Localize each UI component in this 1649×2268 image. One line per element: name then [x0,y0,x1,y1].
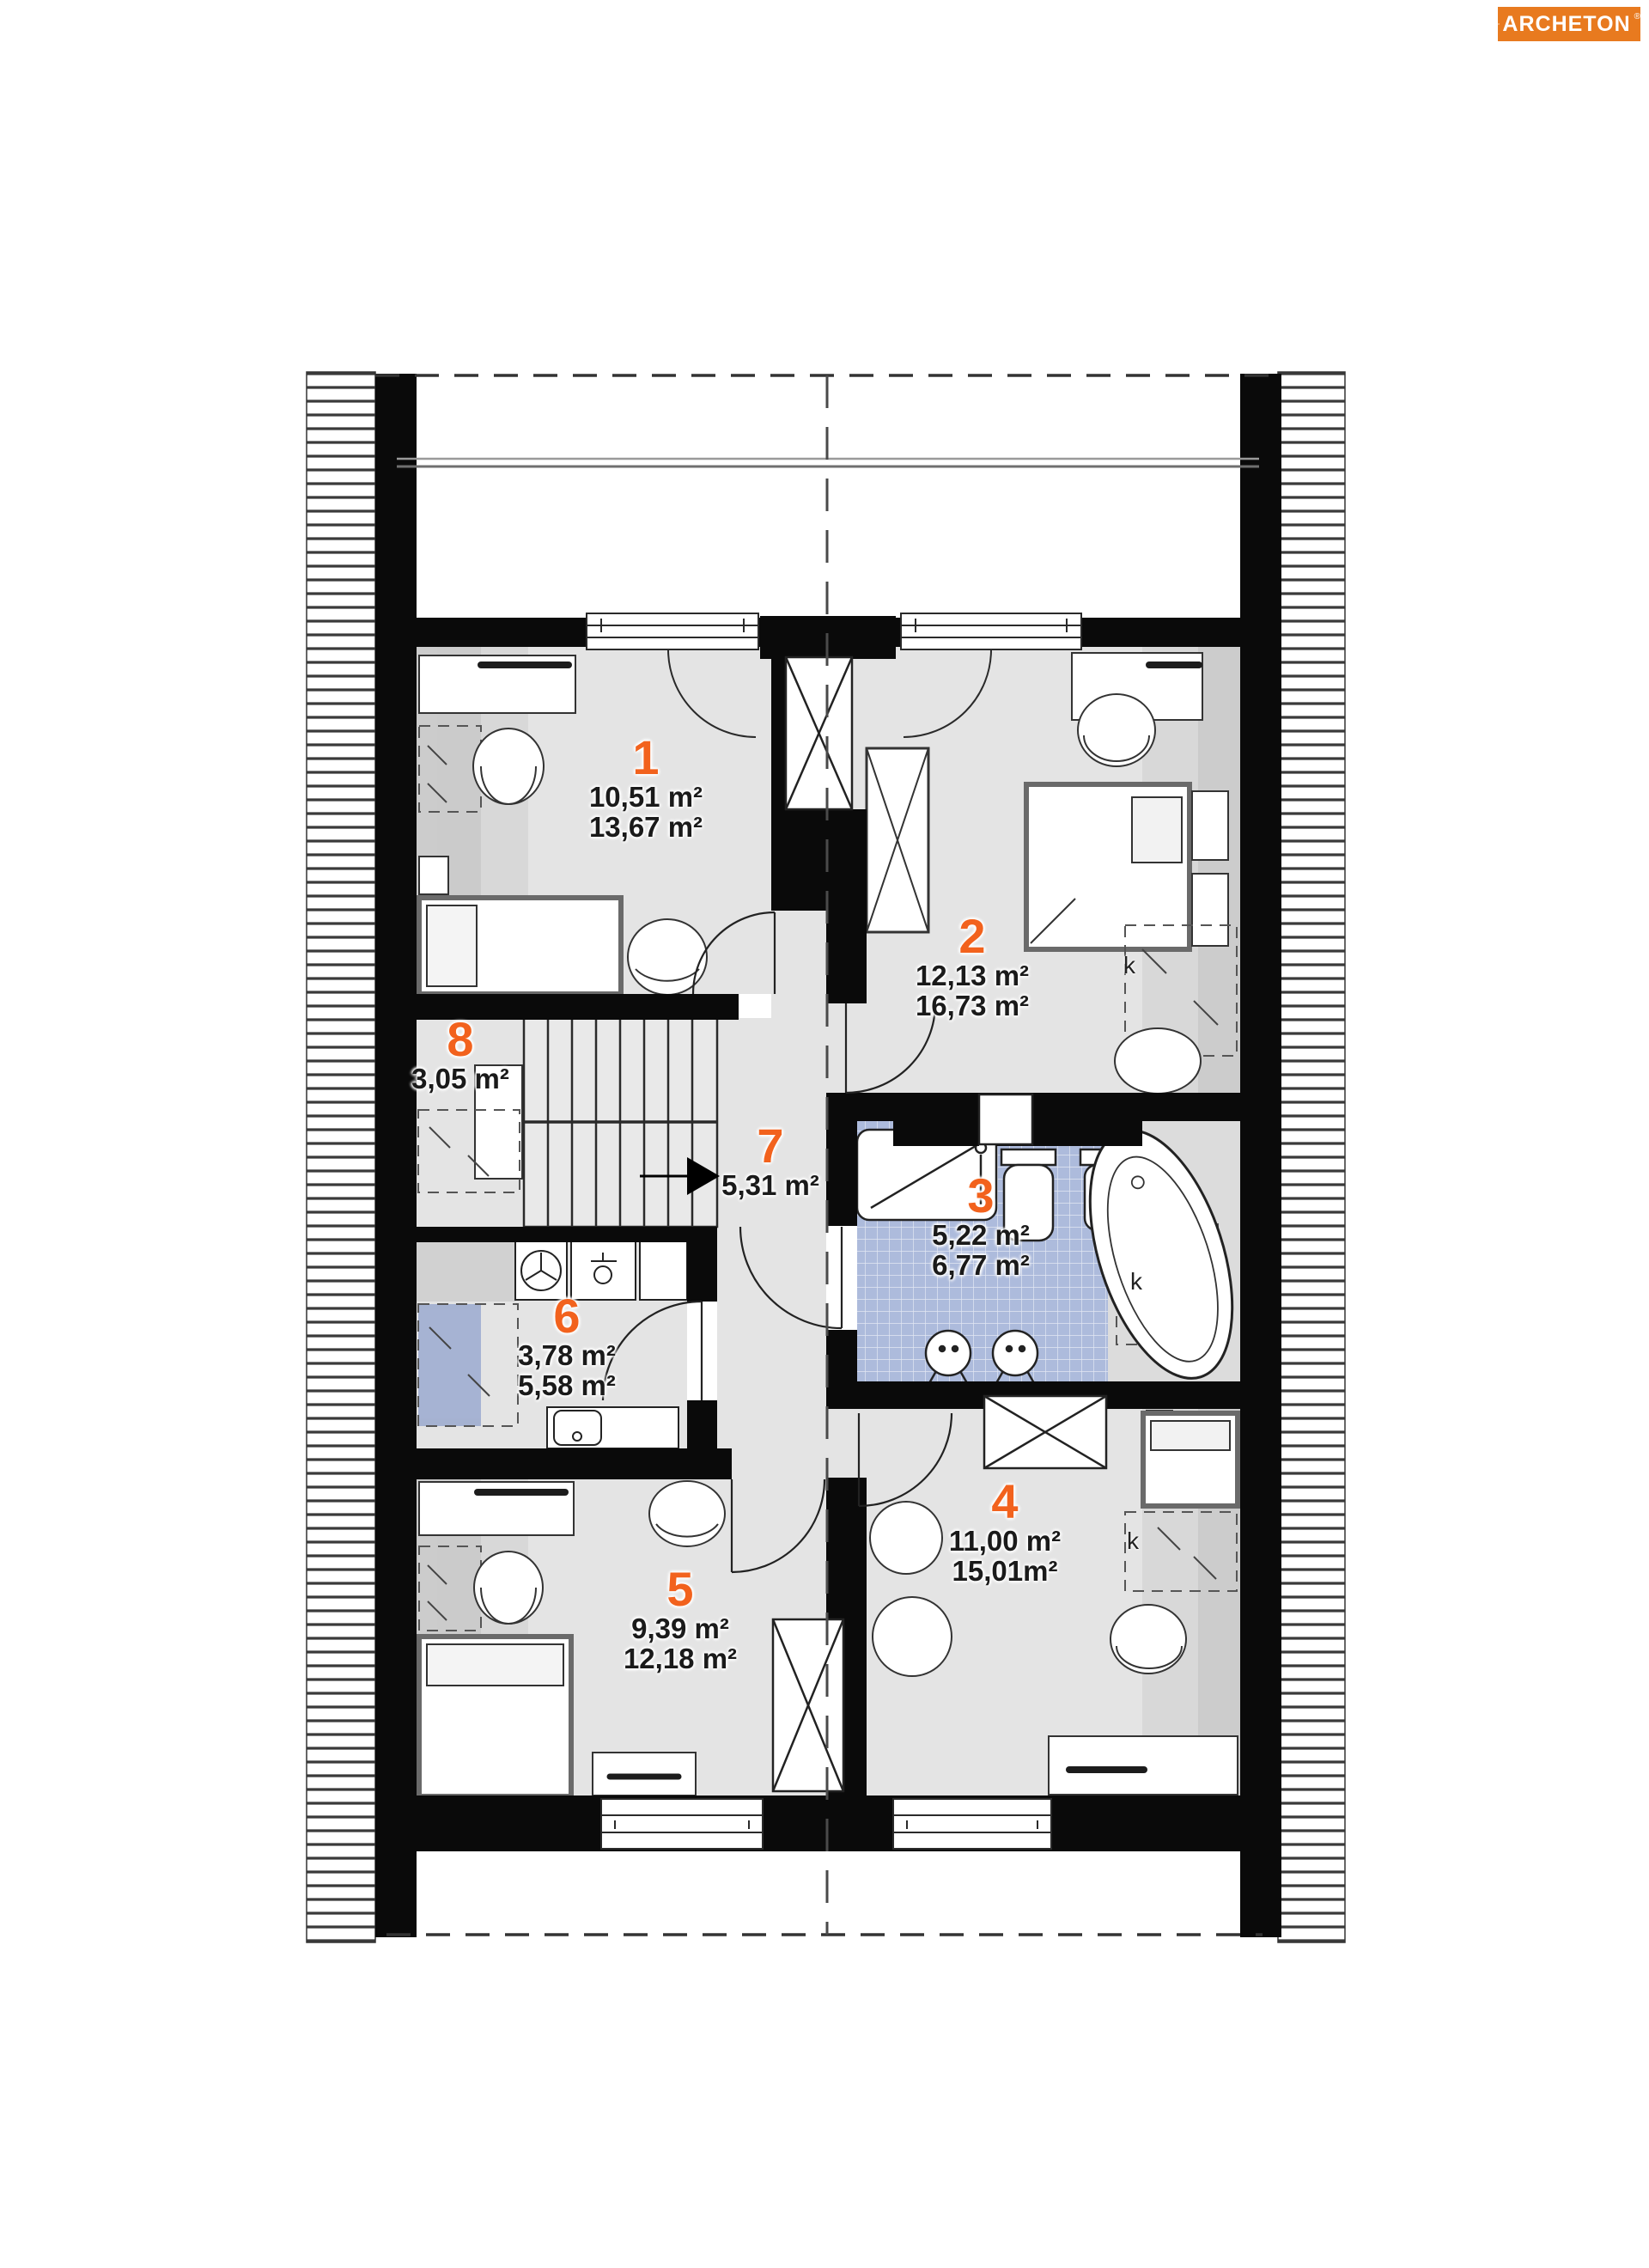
wall-hall-room2 [826,809,867,1003]
room-1-area-2: 13,67 m² [589,813,703,843]
room-8-number: 8 [447,1014,473,1064]
closet-k-label-bathroom: k [1130,1268,1142,1296]
outer-wall-left [375,374,417,1937]
wall-bath-left-a [826,1093,857,1226]
window-room5-bottom [601,1799,763,1849]
room-3-area-1: 5,22 m² [932,1221,1030,1251]
wall-laundry-room5 [417,1448,732,1479]
room-label-2: 2 12,13 m² 16,73 m² [916,911,1029,1021]
roof-hatch-right [1278,372,1345,1942]
pouf [628,919,707,995]
closet-k-label-room4: k [1127,1527,1139,1555]
logo-registered-mark: ® [1634,13,1640,21]
wall-room6-hall-b [687,1400,717,1448]
logo-text: ARCHETON [1502,14,1630,35]
chair [473,729,544,804]
pouf [873,1597,952,1676]
wall-room6-hall-a [687,1241,717,1302]
room-4-area-2: 15,01m² [952,1557,1058,1587]
toilet [926,1331,971,1375]
wall-stairs-laundry [417,1227,717,1242]
archeton-logo-icon [1498,13,1500,35]
room-3-number: 3 [967,1170,994,1221]
bidet [993,1331,1037,1375]
window-room4-bottom [893,1799,1051,1849]
room-2-number: 2 [958,911,985,961]
armchair [1115,1028,1201,1094]
wall-bath-top-block [893,1093,979,1146]
room-7-area-1: 5,31 m² [721,1171,819,1201]
shaft-box-bath [979,1094,1032,1144]
closet-k-label-room2: k [1123,952,1135,979]
floor-plan-page: ARCHETON ® 1 10,51 m² 13,67 m² 2 12,13 m… [0,0,1649,2268]
room-label-7: 7 5,31 m² [721,1120,819,1201]
shaft-top-center [786,657,852,809]
roof-hatch-left [307,372,375,1942]
pouf [870,1502,942,1574]
room-label-6: 6 3,78 m² 5,58 m² [518,1290,616,1401]
room-4-area-1: 11,00 m² [949,1527,1061,1557]
room-1-area-1: 10,51 m² [589,783,703,813]
nightstand [1192,874,1228,946]
room-4-number: 4 [991,1476,1018,1527]
sink-back [1001,1149,1056,1165]
counter [640,1241,687,1300]
wall-bath-left-b [826,1330,857,1381]
room-label-1: 1 10,51 m² 13,67 m² [589,732,703,843]
room-label-3: 3 5,22 m² 6,77 m² [932,1170,1030,1281]
chair [474,1552,543,1624]
room-7-number: 7 [757,1120,783,1171]
nightstand [419,857,448,894]
shaft-below-bath [984,1396,1106,1468]
room-6-number: 6 [553,1290,580,1341]
room-label-4: 4 11,00 m² 15,01m² [949,1476,1061,1587]
pillow [427,1644,563,1686]
room-6-area-2: 5,58 m² [518,1371,616,1401]
room-5-area-1: 9,39 m² [631,1614,729,1644]
desk [1049,1736,1238,1795]
room-1-number: 1 [632,732,659,783]
room-2-area-2: 16,73 m² [916,991,1029,1021]
nightstand [1192,791,1228,860]
pillow [427,905,477,986]
room-5-number: 5 [666,1564,693,1614]
room-3-area-2: 6,77 m² [932,1251,1030,1281]
pillow [1132,797,1182,863]
armchair [1110,1605,1186,1674]
archeton-logo: ARCHETON ® [1498,7,1640,41]
outer-wall-right [1240,374,1281,1937]
room-5-area-2: 12,18 m² [624,1644,737,1674]
counter-sink [547,1407,678,1448]
room-label-8: 8 3,05 m² [411,1014,509,1094]
shaft-bottom-center [773,1619,843,1791]
room-6-area-1: 3,78 m² [518,1341,616,1371]
chair [1078,694,1155,766]
room-8-area-1: 3,05 m² [411,1064,509,1094]
room-label-5: 5 9,39 m² 12,18 m² [624,1564,737,1674]
pillow [1151,1421,1230,1450]
attic-floor-plan-drawing [0,0,1649,2268]
room-2-area-1: 12,13 m² [916,961,1029,991]
